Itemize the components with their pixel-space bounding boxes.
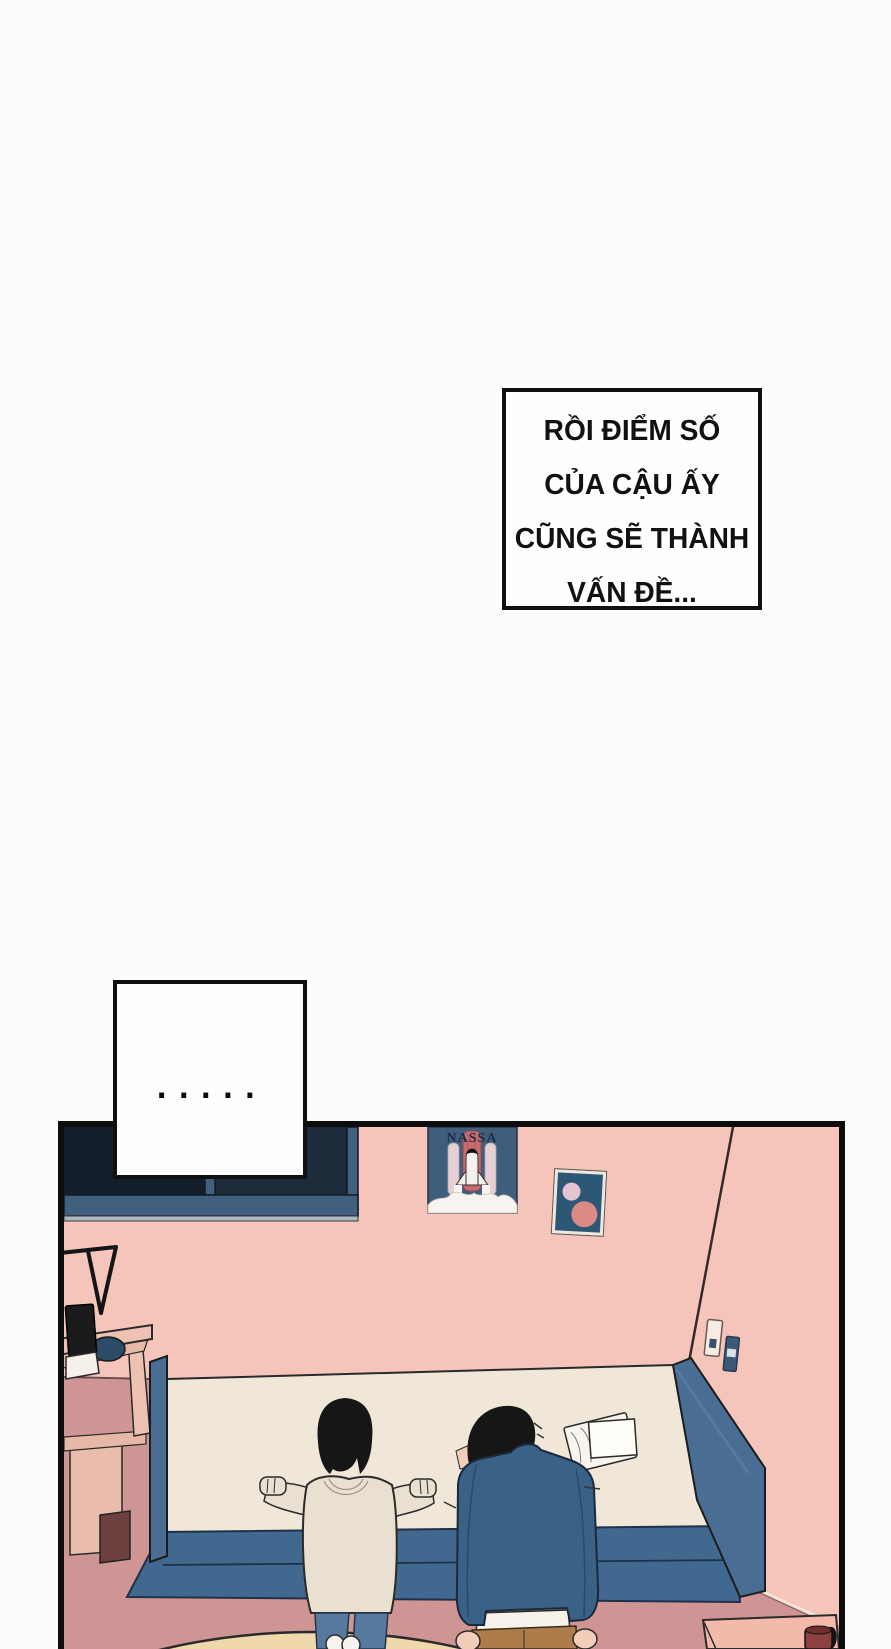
poster-title: NASSA: [447, 1131, 498, 1146]
mattress: [163, 1365, 732, 1534]
girl-sock-right: [342, 1636, 360, 1649]
window-sill: [64, 1195, 358, 1216]
power-outlet: [723, 1336, 739, 1371]
comic-panel: NASSA: [58, 1121, 845, 1649]
light-switch: [704, 1319, 723, 1356]
headboard: [150, 1356, 167, 1562]
narration-line: RỒI ĐIỂM SỐ: [510, 404, 754, 458]
boy-fist-right: [573, 1629, 597, 1649]
ellipsis-text: .....: [153, 1074, 263, 1104]
speech-box-narration: RỒI ĐIỂM SỐ CỦA CẬU ẤY CŨNG SẼ THÀNH VẤN…: [502, 388, 762, 610]
nassa-poster: NASSA: [428, 1127, 517, 1213]
window-sill-edge: [64, 1216, 358, 1221]
monitor-screen: [65, 1304, 96, 1356]
bed: [127, 1356, 765, 1602]
room-scene: NASSA: [64, 1127, 839, 1649]
girl-hoodie: [303, 1476, 397, 1613]
shuttle-orbiter: [466, 1149, 478, 1185]
boy-fist-left: [456, 1631, 480, 1649]
wall-art-frame: [551, 1169, 606, 1237]
comic-page: RỒI ĐIỂM SỐ CỦA CẬU ẤY CŨNG SẼ THÀNH VẤN…: [0, 0, 891, 1649]
narration-text: RỒI ĐIỂM SỐ CỦA CẬU ẤY CŨNG SẼ THÀNH VẤN…: [510, 404, 754, 620]
cup-rim: [806, 1626, 832, 1634]
under-desk-box: [100, 1511, 130, 1563]
narration-line: VẤN ĐỀ...: [510, 566, 754, 620]
girl-hand-right: [410, 1479, 436, 1497]
outlet-socket: [727, 1348, 737, 1357]
switch-toggle: [709, 1339, 717, 1349]
girl-hair: [318, 1398, 373, 1474]
girl-sock-left: [326, 1635, 344, 1649]
paper-front: [589, 1419, 637, 1458]
narration-line: CŨNG SẼ THÀNH: [510, 512, 754, 566]
switch-plate: [704, 1319, 723, 1356]
monitor: [65, 1304, 96, 1356]
speech-box-ellipsis: .....: [113, 980, 307, 1179]
narration-line: CỦA CẬU ẤY: [510, 458, 754, 512]
girl-hand-left: [260, 1477, 286, 1495]
